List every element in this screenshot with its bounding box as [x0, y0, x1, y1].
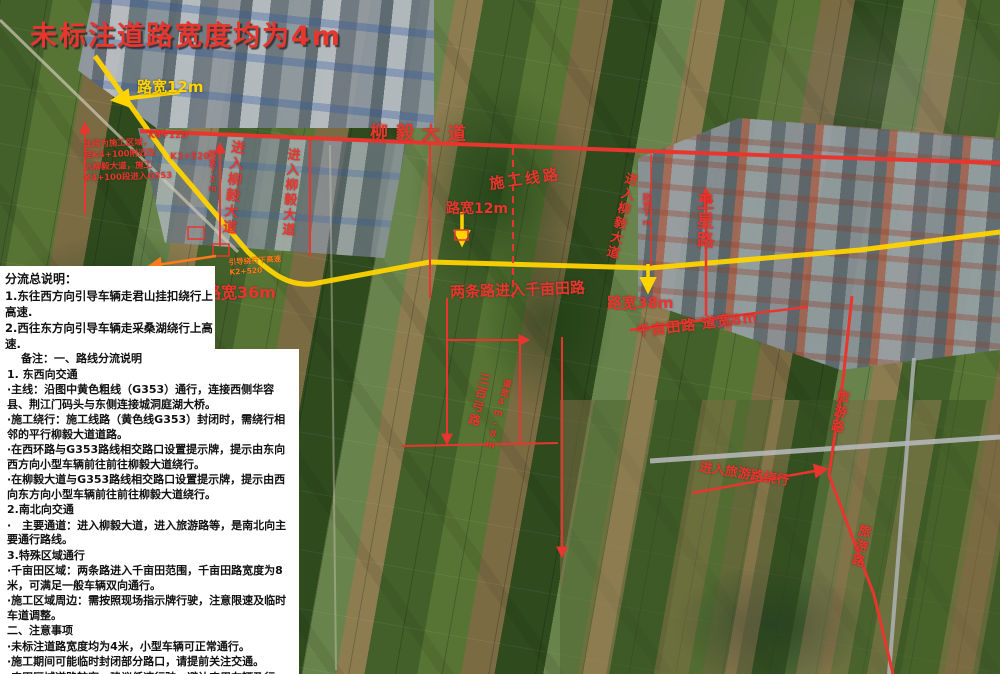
railway-line — [0, 20, 238, 252]
note-paragraph: 二、注意事项 — [7, 624, 293, 639]
qianmutian-road-line — [630, 307, 808, 330]
liuyi-avenue-detour-line — [140, 131, 1000, 163]
note-paragraph: ·主线：沿图中黄色粗线（G353）通行，连接西侧华容县、荆江门码头与东侧连接城洞… — [7, 383, 293, 412]
summary-item: 1.东往西方向引导车辆走君山挂扣绕行上高速. — [5, 288, 213, 320]
note-paragraph: ·施工绕行：施工线路（黄色线G353）封闭时，需绕行相邻的平行柳毅大道道路。 — [7, 413, 293, 442]
g353-construction-route-line — [95, 56, 1000, 284]
tourist-road-detour-line — [829, 296, 893, 674]
route-notes-panel: 备注：一、路线分流说明 1. 东西向交通 ·主线：沿图中黄色粗线（G353）通行… — [0, 349, 299, 674]
summary-item: 2.西往东方向引导车辆走采桑湖绕行上高速. — [5, 320, 213, 352]
note-paragraph: 1. 东西向交通 — [7, 368, 293, 383]
summary-heading: 分流总说明： — [5, 271, 213, 288]
qianmutian-south-line — [402, 443, 558, 446]
note-paragraph: 2.南北向交通 — [7, 503, 293, 518]
enter-tourist-road-line — [692, 469, 826, 493]
grey-road-southeast — [889, 358, 914, 674]
note-paragraph: ·未标注道路宽度均为4米，小型车辆可正常通行。 — [7, 640, 293, 655]
offramp-guidance-arrow — [150, 256, 216, 266]
note-paragraph: 备注：一、路线分流说明 — [7, 352, 293, 367]
note-paragraph: ·施工期间可能临时封闭部分路口，请提前关注交通。 — [7, 655, 293, 670]
note-paragraph: ·施工区域周边：需按照现场指示牌行驶，注意限速及临时车道调整。 — [7, 594, 293, 623]
note-paragraph: · 主要通道：进入柳毅大道，进入旅游路等，是南北向主要通行路线。 — [7, 519, 293, 548]
field-road — [330, 145, 336, 670]
note-paragraph: ·在柳毅大道与G353路线相交路口设置提示牌，提示由西向东方向小型车辆前往前往柳… — [7, 473, 293, 502]
note-paragraph: ·在西环路与G353路线相交路口设置提示牌，提示由东向西方向小型车辆前往前往柳毅… — [7, 443, 293, 472]
note-paragraph: ·千亩田区域：两条路进入千亩田范围，千亩田路宽度为8米，可满足一般车辆双向通行。 — [7, 564, 293, 593]
annotated-satellite-map: 未标注道路宽度均为4m 路宽12m 此段为施工区域， 至K4+100附近改 入柳… — [0, 0, 1000, 674]
grey-road-east — [650, 437, 1000, 461]
construction-marker-box — [188, 227, 204, 239]
note-paragraph: 3.特殊区域通行 — [7, 549, 293, 564]
